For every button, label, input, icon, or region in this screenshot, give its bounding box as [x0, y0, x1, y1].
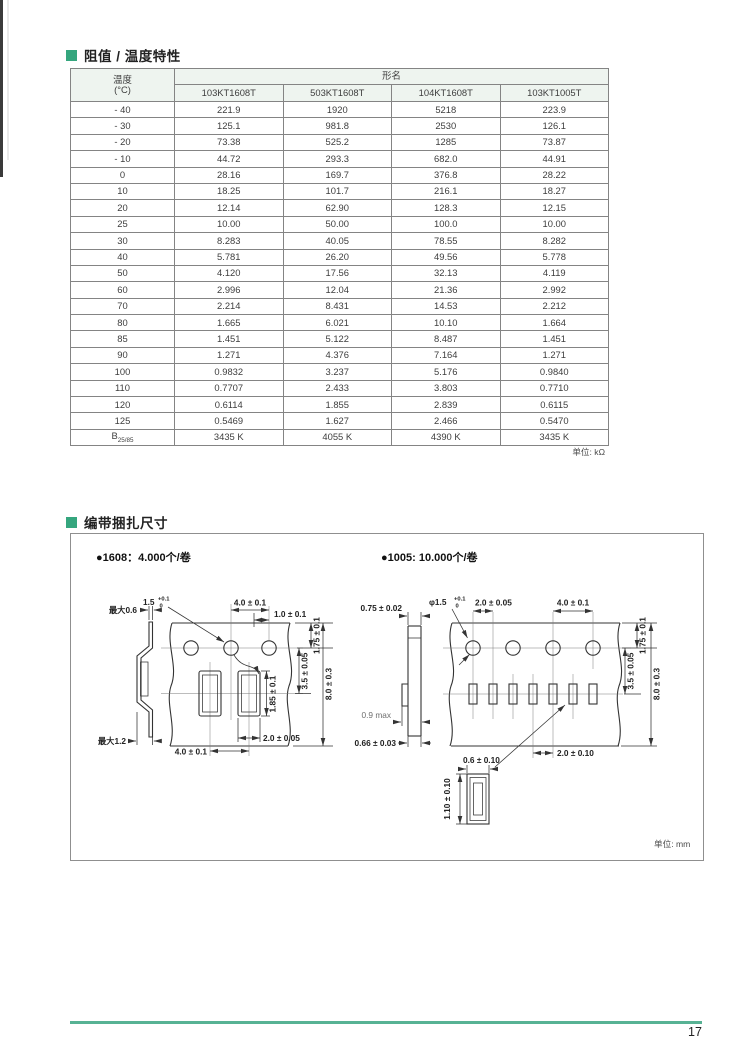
- value-cell: 14.53: [392, 298, 501, 314]
- value-cell: 32.13: [392, 265, 501, 281]
- temp-cell: - 30: [71, 118, 175, 134]
- value-cell: 6.021: [283, 315, 392, 331]
- value-cell: 18.27: [500, 183, 609, 199]
- dim-hole-pocket-pitch-label: 2.0 ± 0.05: [475, 598, 512, 608]
- value-cell: 0.7707: [175, 380, 284, 396]
- pocket-detail-leader: [495, 705, 565, 767]
- value-cell: 100.0: [392, 216, 501, 232]
- unit-note-mm: 单位: mm: [654, 838, 690, 849]
- dim-pocket-width-1608: 2.0 ± 0.05: [238, 718, 300, 743]
- temp-header-line2: (°C): [114, 84, 131, 95]
- model-group-header: 形名: [175, 69, 609, 85]
- value-cell: 216.1: [392, 183, 501, 199]
- temp-cell: - 20: [71, 134, 175, 150]
- datasheet-page: 阻值 / 温度特性 温度 (°C) 形名 103KT1608T 503KT160…: [0, 0, 750, 1061]
- value-cell: 12.14: [175, 200, 284, 216]
- dim-edge-to-hole-label: 1.75 ± 0.1: [638, 617, 648, 654]
- b-constant-value: 4055 K: [283, 429, 392, 445]
- table-row: - 1044.72293.3682.044.91: [71, 151, 609, 167]
- value-cell: 4.120: [175, 265, 284, 281]
- value-cell: 73.87: [500, 134, 609, 150]
- value-cell: 0.6115: [500, 397, 609, 413]
- value-cell: 3.803: [392, 380, 501, 396]
- value-cell: 2.433: [283, 380, 392, 396]
- value-cell: 1.271: [500, 347, 609, 363]
- dim-pocket-width-label: 0.6 ± 0.10: [463, 755, 500, 765]
- table-row: 801.6656.02110.101.664: [71, 315, 609, 331]
- value-cell: 376.8: [392, 167, 501, 183]
- value-cell: 1.451: [175, 331, 284, 347]
- value-cell: 2530: [392, 118, 501, 134]
- section-resistance-title: 阻值 / 温度特性: [84, 45, 181, 65]
- page-number: 17: [688, 1025, 702, 1039]
- dim-hole-pitch-label: 4.0 ± 0.1: [557, 598, 590, 608]
- value-cell: 12.15: [500, 200, 609, 216]
- dim-hole-dia-1608: 1.5 +0.1 0: [143, 597, 259, 675]
- dim-tape-width-label: 8.0 ± 0.3: [324, 668, 334, 701]
- value-cell: 0.7710: [500, 380, 609, 396]
- unit-note-kohm: 单位: kΩ: [420, 446, 605, 458]
- value-cell: 125.1: [175, 118, 284, 134]
- value-cell: 2.466: [392, 413, 501, 429]
- temp-cell: 110: [71, 380, 175, 396]
- tape-1005: [443, 612, 631, 758]
- dim-bottom-thickness-label: 0.66 ± 0.03: [355, 738, 397, 748]
- temp-cell: 0: [71, 167, 175, 183]
- scan-artifact: [0, 0, 3, 177]
- value-cell: 1.451: [500, 331, 609, 347]
- value-cell: 0.9840: [500, 364, 609, 380]
- value-cell: 1.665: [175, 315, 284, 331]
- value-cell: 28.22: [500, 167, 609, 183]
- temp-cell: 80: [71, 315, 175, 331]
- value-cell: 2.992: [500, 282, 609, 298]
- dim-max-thickness-1005: 0.9 max: [361, 706, 430, 726]
- value-cell: 126.1: [500, 118, 609, 134]
- table-row: 405.78126.2049.565.778: [71, 249, 609, 265]
- dim-hole-dia-tol-plus: +0.1: [454, 597, 466, 603]
- temp-cell: 85: [71, 331, 175, 347]
- value-cell: 2.996: [175, 282, 284, 298]
- temp-cell: 90: [71, 347, 175, 363]
- value-cell: 223.9: [500, 102, 609, 118]
- value-cell: 3.237: [283, 364, 392, 380]
- temp-cell: 20: [71, 200, 175, 216]
- value-cell: 1.664: [500, 315, 609, 331]
- table-row: 602.99612.0421.362.992: [71, 282, 609, 298]
- dim-hole-pitch-1005: 4.0 ± 0.1: [553, 598, 593, 612]
- packaging-diagram-box: ●1608：4.000个/卷 最大0.6: [70, 533, 704, 861]
- section-packaging-title: 编带捆扎尺寸: [84, 512, 168, 532]
- temp-cell: 10: [71, 183, 175, 199]
- dim-pocket-length-label: 1.85 ± 0.1: [268, 675, 278, 712]
- pocket-detail-1005: 0.6 ± 0.10 1.10 ± 0.10: [442, 755, 500, 824]
- value-cell: 128.3: [392, 200, 501, 216]
- dim-hole-pitch-label: 4.0 ± 0.1: [234, 598, 267, 608]
- value-cell: 1.627: [283, 413, 392, 429]
- dim-pocket-width-label: 2.0 ± 0.05: [263, 733, 300, 743]
- b-constant-row: B25/853435 K4055 K4390 K3435 K: [71, 429, 609, 445]
- b-constant-value: 4390 K: [392, 429, 501, 445]
- value-cell: 1285: [392, 134, 501, 150]
- value-cell: 21.36: [392, 282, 501, 298]
- value-cell: 2.214: [175, 298, 284, 314]
- value-cell: 12.04: [283, 282, 392, 298]
- value-cell: 0.5470: [500, 413, 609, 429]
- value-cell: 221.9: [175, 102, 284, 118]
- value-cell: 1.855: [283, 397, 392, 413]
- dim-pocket-pitch-1005: 2.0 ± 0.10: [533, 748, 594, 758]
- value-cell: 8.282: [500, 233, 609, 249]
- side-profile-1005: [402, 626, 421, 736]
- value-cell: 50.00: [283, 216, 392, 232]
- model-header-2: 104KT1608T: [392, 85, 501, 102]
- dim-hole-pitch-1608: 4.0 ± 0.1: [231, 598, 269, 611]
- footer-rule: [70, 1021, 702, 1024]
- dim-right-1608: 1.75 ± 0.1 3.5 ± 0.05 8.0 ± 0.3: [293, 617, 334, 746]
- dim-hole-to-pocket-label: 3.5 ± 0.05: [300, 652, 310, 689]
- value-cell: 5.122: [283, 331, 392, 347]
- value-cell: 4.376: [283, 347, 392, 363]
- value-cell: 1.271: [175, 347, 284, 363]
- value-cell: 62.90: [283, 200, 392, 216]
- value-cell: 5.778: [500, 249, 609, 265]
- value-cell: 8.431: [283, 298, 392, 314]
- dim-max-1-2-label: 最大1.2: [98, 736, 127, 746]
- b-constant-label: B25/85: [71, 429, 175, 445]
- model-header-0: 103KT1608T: [175, 85, 284, 102]
- value-cell: 17.56: [283, 265, 392, 281]
- dim-right-1005: 3.5 ± 0.05 1.75 ± 0.1 8.0 ± 0.3: [621, 617, 662, 746]
- table-row: - 40221.919205218223.9: [71, 102, 609, 118]
- value-cell: 44.91: [500, 151, 609, 167]
- value-cell: 5.176: [392, 364, 501, 380]
- dim-hole-dia-tol-plus: +0.1: [158, 597, 170, 603]
- temp-cell: 60: [71, 282, 175, 298]
- diagram-1005: ●1005: 10.000个/卷 0.75 ± 0.02: [355, 550, 662, 824]
- value-cell: 10.00: [500, 216, 609, 232]
- temp-column-header: 温度 (°C): [71, 69, 175, 102]
- dim-hole-dia-label: 1.5: [143, 597, 155, 607]
- table-row: 1200.61141.8552.8390.6115: [71, 397, 609, 413]
- dim-pocket-pitch-label: 4.0 ± 0.1: [175, 747, 208, 757]
- table-row: 1018.25101.7216.118.27: [71, 183, 609, 199]
- dim-offset-label: 1.0 ± 0.1: [274, 609, 307, 619]
- table-row: 702.2148.43114.532.212: [71, 298, 609, 314]
- dim-pocket-pitch-label: 2.0 ± 0.10: [557, 748, 594, 758]
- side-profile-1608: [137, 622, 153, 737]
- temp-cell: 100: [71, 364, 175, 380]
- value-cell: 18.25: [175, 183, 284, 199]
- table-row: - 2073.38525.2128573.87: [71, 134, 609, 150]
- diagram-1608: ●1608：4.000个/卷 最大0.6: [96, 550, 334, 757]
- dim-hole-dia-tol-zero: 0: [456, 604, 459, 610]
- dim-max-0-6: 最大0.6: [109, 605, 162, 620]
- table-row: 1000.98323.2375.1760.9840: [71, 364, 609, 380]
- temp-cell: - 40: [71, 102, 175, 118]
- section-marker-icon: [66, 517, 77, 528]
- table-row: 504.12017.5632.134.119: [71, 265, 609, 281]
- temp-cell: 70: [71, 298, 175, 314]
- value-cell: 169.7: [283, 167, 392, 183]
- dim-hole-dia-label: φ1.5: [429, 597, 447, 607]
- dim-thickness-1005: 0.75 ± 0.02: [361, 603, 430, 625]
- model-header-1: 503KT1608T: [283, 85, 392, 102]
- value-cell: 4.119: [500, 265, 609, 281]
- table-row: 851.4515.1228.4871.451: [71, 331, 609, 347]
- value-cell: 10.10: [392, 315, 501, 331]
- temp-cell: 40: [71, 249, 175, 265]
- value-cell: 7.164: [392, 347, 501, 363]
- dim-bottom-thickness-1005: 0.66 ± 0.03: [355, 736, 431, 748]
- value-cell: 28.16: [175, 167, 284, 183]
- temp-cell: - 10: [71, 151, 175, 167]
- value-cell: 2.839: [392, 397, 501, 413]
- value-cell: 78.55: [392, 233, 501, 249]
- value-cell: 101.7: [283, 183, 392, 199]
- page-edge-shadow: [7, 0, 9, 160]
- packaging-diagram: ●1608：4.000个/卷 最大0.6: [71, 534, 703, 860]
- value-cell: 26.20: [283, 249, 392, 265]
- table-row: - 30125.1981.82530126.1: [71, 118, 609, 134]
- table-row: 2012.1462.90128.312.15: [71, 200, 609, 216]
- temp-cell: 25: [71, 216, 175, 232]
- temp-cell: 125: [71, 413, 175, 429]
- b-constant-value: 3435 K: [500, 429, 609, 445]
- section-marker-icon: [66, 50, 77, 61]
- section-resistance-header: 阻值 / 温度特性: [66, 45, 181, 65]
- table-row: 1250.54691.6272.4660.5470: [71, 413, 609, 429]
- rt-table-wrap: 温度 (°C) 形名 103KT1608T 503KT1608T 104KT16…: [70, 68, 609, 446]
- value-cell: 293.3: [283, 151, 392, 167]
- value-cell: 0.9832: [175, 364, 284, 380]
- table-row: 028.16169.7376.828.22: [71, 167, 609, 183]
- value-cell: 73.38: [175, 134, 284, 150]
- value-cell: 0.5469: [175, 413, 284, 429]
- reel-1005-label: ●1005: 10.000个/卷: [381, 550, 479, 564]
- value-cell: 1920: [283, 102, 392, 118]
- value-cell: 40.05: [283, 233, 392, 249]
- dim-hole-pocket-pitch-1005: 2.0 ± 0.05: [473, 598, 512, 612]
- value-cell: 5.781: [175, 249, 284, 265]
- rt-table: 温度 (°C) 形名 103KT1608T 503KT1608T 104KT16…: [70, 68, 609, 446]
- model-header-3: 103KT1005T: [500, 85, 609, 102]
- temp-cell: 30: [71, 233, 175, 249]
- table-row: 1100.77072.4333.8030.7710: [71, 380, 609, 396]
- temp-header-line1: 温度: [113, 74, 132, 85]
- value-cell: 5218: [392, 102, 501, 118]
- value-cell: 49.56: [392, 249, 501, 265]
- value-cell: 10.00: [175, 216, 284, 232]
- dim-edge-to-hole-label: 1.75 ± 0.1: [312, 617, 322, 654]
- value-cell: 981.8: [283, 118, 392, 134]
- dim-max-0-6-label: 最大0.6: [109, 605, 138, 615]
- dim-pocket-height-label: 1.10 ± 0.10: [442, 778, 452, 820]
- temp-cell: 120: [71, 397, 175, 413]
- dim-offset-1608: 1.0 ± 0.1: [254, 609, 307, 627]
- value-cell: 8.283: [175, 233, 284, 249]
- value-cell: 8.487: [392, 331, 501, 347]
- dim-hole-dia-1005: φ1.5 +0.1 0: [429, 597, 470, 666]
- dim-tape-width-label: 8.0 ± 0.3: [652, 668, 662, 701]
- table-row: 901.2714.3767.1641.271: [71, 347, 609, 363]
- dim-max-thickness-label: 0.9 max: [361, 710, 391, 720]
- section-packaging-header: 编带捆扎尺寸: [66, 512, 168, 532]
- dim-hole-dia-tol-zero: 0: [160, 604, 163, 610]
- value-cell: 0.6114: [175, 397, 284, 413]
- reel-1608-label: ●1608：4.000个/卷: [96, 550, 192, 564]
- b-constant-value: 3435 K: [175, 429, 284, 445]
- dim-hole-to-pocket-label: 3.5 ± 0.05: [626, 652, 636, 689]
- value-cell: 44.72: [175, 151, 284, 167]
- value-cell: 2.212: [500, 298, 609, 314]
- dim-pocket-pitch-1608: 4.0 ± 0.1: [175, 747, 249, 757]
- table-row: 2510.0050.00100.010.00: [71, 216, 609, 232]
- table-row: 308.28340.0578.558.282: [71, 233, 609, 249]
- value-cell: 682.0: [392, 151, 501, 167]
- dim-thickness-label: 0.75 ± 0.02: [361, 603, 403, 613]
- value-cell: 525.2: [283, 134, 392, 150]
- temp-cell: 50: [71, 265, 175, 281]
